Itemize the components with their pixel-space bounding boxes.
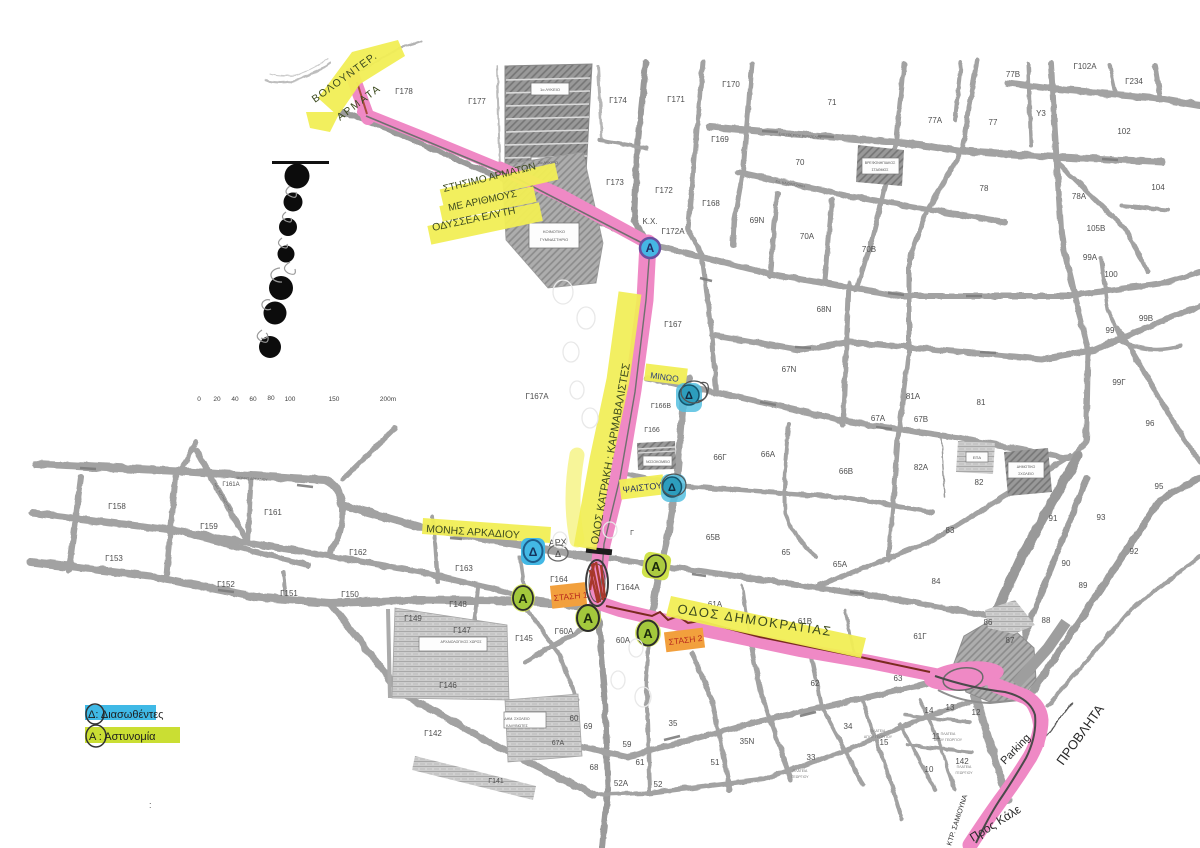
svg-text:82A: 82A	[914, 463, 929, 472]
svg-text:ΠΛΑΤΕΙΑ: ΠΛΑΤΕΙΑ	[957, 765, 972, 769]
svg-text:67A: 67A	[871, 414, 886, 423]
svg-text:Γ: Γ	[630, 530, 634, 537]
svg-text:Γ151: Γ151	[280, 589, 298, 598]
svg-text:Γ174: Γ174	[609, 96, 627, 105]
svg-text:Γ170: Γ170	[722, 80, 740, 89]
svg-text:A: A	[646, 241, 655, 255]
svg-text:Γ166: Γ166	[644, 427, 660, 434]
svg-text:Γ167: Γ167	[664, 320, 682, 329]
svg-text:81A: 81A	[906, 392, 921, 401]
svg-text:89: 89	[1079, 581, 1088, 590]
svg-text:61Γ: 61Γ	[913, 632, 927, 641]
svg-text:100: 100	[1104, 270, 1118, 279]
svg-text:67B: 67B	[914, 415, 928, 424]
svg-text:60: 60	[570, 714, 579, 723]
svg-text:80: 80	[267, 395, 275, 402]
svg-text:Γ141: Γ141	[488, 778, 504, 785]
svg-text:ΠΛΑΤΕΙΑ: ΠΛΑΤΕΙΑ	[941, 732, 956, 736]
svg-text:77B: 77B	[1006, 70, 1020, 79]
svg-text:Γ177: Γ177	[468, 97, 486, 106]
svg-text:ΓΕΩΡΓΙΟΥ: ΓΕΩΡΓΙΟΥ	[791, 775, 809, 779]
svg-text:ΣΤΑΘΜΟΣ: ΣΤΑΘΜΟΣ	[872, 168, 890, 172]
svg-text:Α : Αστυνομία: Α : Αστυνομία	[89, 731, 156, 743]
svg-text:83: 83	[946, 526, 955, 535]
svg-text:13: 13	[946, 703, 955, 712]
svg-text:K.X.: K.X.	[642, 217, 657, 226]
svg-text:Γ167A: Γ167A	[525, 392, 549, 401]
svg-text:Γ172A: Γ172A	[661, 227, 685, 236]
svg-text:100: 100	[285, 396, 296, 403]
svg-text:96: 96	[1146, 419, 1155, 428]
svg-text:20: 20	[213, 396, 221, 403]
svg-text:Δ: Δ	[529, 545, 538, 559]
svg-text:65B: 65B	[706, 533, 720, 542]
svg-text:Γ152: Γ152	[217, 580, 235, 589]
svg-text:95: 95	[1155, 482, 1164, 491]
svg-text:ΚΟΙΝΟΤΙΚΟ: ΚΟΙΝΟΤΙΚΟ	[543, 229, 565, 234]
svg-text:92: 92	[1130, 547, 1139, 556]
svg-text:Γ145: Γ145	[515, 634, 533, 643]
svg-text:67A: 67A	[552, 740, 565, 747]
svg-text:15: 15	[880, 738, 889, 747]
svg-text:ΝΟΣΟΚΟΜΕΙΟ: ΝΟΣΟΚΟΜΕΙΟ	[646, 460, 670, 464]
svg-text:ΑΓΙΟΥ ΓΕΩΡΓΙΟΥ: ΑΓΙΟΥ ΓΕΩΡΓΙΟΥ	[934, 738, 963, 742]
svg-text:0: 0	[197, 396, 201, 403]
svg-text:Δ: Δ	[668, 482, 676, 494]
svg-text:Γ161A: Γ161A	[222, 482, 239, 488]
svg-text:71: 71	[828, 98, 837, 107]
svg-text:200m: 200m	[380, 396, 396, 403]
svg-text:35: 35	[669, 719, 678, 728]
svg-text:Δ: Διασωθέντες: Δ: Διασωθέντες	[88, 709, 163, 721]
svg-text:86: 86	[984, 618, 993, 627]
svg-text:Γ142: Γ142	[424, 729, 442, 738]
svg-text:ΔΗΜΟΤΙΚΟ: ΔΗΜΟΤΙΚΟ	[1017, 465, 1036, 469]
svg-text:102: 102	[1117, 127, 1131, 136]
svg-text:84: 84	[932, 577, 941, 586]
svg-text:52A: 52A	[614, 779, 629, 788]
svg-text:ΑΡΧΑΙΟΛΟΓΙΚΟΣ ΧΩΡΟΣ: ΑΡΧΑΙΟΛΟΓΙΚΟΣ ΧΩΡΟΣ	[440, 640, 482, 644]
svg-text:66A: 66A	[761, 450, 776, 459]
svg-text:93: 93	[1097, 513, 1106, 522]
svg-text:Γ171: Γ171	[667, 95, 685, 104]
svg-text:69N: 69N	[750, 216, 765, 225]
svg-text:ΒΡΕΦΟΝΗΠΙΑΚΟΣ: ΒΡΕΦΟΝΗΠΙΑΚΟΣ	[865, 161, 896, 165]
svg-text:Γ166B: Γ166B	[651, 403, 672, 410]
svg-text:Γ146: Γ146	[439, 681, 457, 690]
svg-text:33: 33	[807, 753, 816, 762]
svg-text:66Γ: 66Γ	[713, 453, 727, 462]
svg-text:10: 10	[925, 765, 934, 774]
svg-text:1ο ΛΥΚΕΙΟ: 1ο ΛΥΚΕΙΟ	[540, 87, 560, 92]
svg-text:60A: 60A	[616, 636, 631, 645]
svg-text:77: 77	[989, 118, 998, 127]
svg-text::: :	[149, 800, 152, 810]
svg-text:Γ150: Γ150	[341, 590, 359, 599]
svg-text:Γ149: Γ149	[404, 614, 422, 623]
svg-text:ΑΓΙΟΥ ΓΕΩΡΓΙΟΥ: ΑΓΙΟΥ ΓΕΩΡΓΙΟΥ	[864, 735, 893, 739]
svg-text:ΔΗΜ. ΣΧΟΛΕΙΟ: ΔΗΜ. ΣΧΟΛΕΙΟ	[504, 717, 530, 721]
svg-text:34: 34	[844, 722, 853, 731]
svg-text:Γ164A: Γ164A	[616, 583, 640, 592]
svg-text:Γ172: Γ172	[655, 186, 673, 195]
svg-text:78: 78	[980, 184, 989, 193]
svg-text:99Γ: 99Γ	[1112, 378, 1126, 387]
svg-text:14: 14	[925, 706, 934, 715]
svg-text:Γ60A: Γ60A	[555, 627, 574, 636]
svg-text:Γ148: Γ148	[449, 600, 467, 609]
svg-text:Γ234: Γ234	[1125, 77, 1143, 86]
svg-text:40: 40	[231, 396, 239, 403]
svg-text:ΚΑΛΥΒΙΩΤΕΣ: ΚΑΛΥΒΙΩΤΕΣ	[506, 724, 528, 728]
svg-text:Γ162: Γ162	[349, 548, 367, 557]
svg-text:35N: 35N	[740, 737, 755, 746]
svg-text:ΓΥΜΝΑΣΤΗΡΙΟ: ΓΥΜΝΑΣΤΗΡΙΟ	[540, 237, 568, 242]
svg-text:104: 104	[1151, 183, 1165, 192]
svg-text:12: 12	[972, 708, 981, 717]
svg-text:Γ158: Γ158	[108, 502, 126, 511]
svg-text:Γ102A: Γ102A	[1073, 62, 1097, 71]
svg-text:A: A	[651, 559, 661, 574]
svg-text:105B: 105B	[1087, 224, 1106, 233]
svg-text:88: 88	[1042, 616, 1051, 625]
svg-text:150: 150	[329, 396, 340, 403]
svg-text:Γ153: Γ153	[105, 554, 123, 563]
svg-text:67N: 67N	[782, 365, 797, 374]
svg-text:Γ168: Γ168	[702, 199, 720, 208]
svg-text:65A: 65A	[833, 560, 848, 569]
svg-text:ΠΛΑΤΕΙΑ: ΠΛΑΤΕΙΑ	[793, 769, 808, 773]
svg-text:99A: 99A	[1083, 253, 1098, 262]
svg-text:99: 99	[1106, 326, 1115, 335]
svg-text:Y3: Y3	[1036, 109, 1046, 118]
svg-text:90: 90	[1062, 559, 1071, 568]
svg-text:61: 61	[636, 758, 645, 767]
svg-text:Γ164: Γ164	[550, 575, 568, 584]
svg-text:Δ: Δ	[685, 390, 693, 402]
svg-text:Γ159: Γ159	[200, 522, 218, 531]
svg-text:65: 65	[782, 548, 791, 557]
svg-text:62: 62	[811, 679, 820, 688]
svg-text:ΓΕΩΡΓΙΟΥ: ΓΕΩΡΓΙΟΥ	[955, 771, 973, 775]
svg-text:69: 69	[584, 722, 593, 731]
svg-text:70A: 70A	[800, 232, 815, 241]
svg-text:ΣΧΟΛΕΙΟ: ΣΧΟΛΕΙΟ	[1018, 472, 1034, 476]
svg-text:A: A	[518, 591, 528, 606]
svg-text:Δ: Δ	[555, 549, 561, 559]
svg-text:A: A	[583, 610, 593, 626]
svg-text:87: 87	[1006, 636, 1015, 645]
svg-text:52: 52	[654, 780, 663, 789]
svg-text:66B: 66B	[839, 467, 853, 476]
svg-text:Γ173: Γ173	[606, 178, 624, 187]
svg-text:60: 60	[249, 396, 257, 403]
svg-text:Γ163: Γ163	[455, 564, 473, 573]
svg-text:78A: 78A	[1072, 192, 1087, 201]
svg-text:ΕΠΑ: ΕΠΑ	[973, 455, 982, 460]
svg-text:81: 81	[977, 398, 986, 407]
svg-text:Γ147: Γ147	[453, 626, 471, 635]
svg-text:ΠΛΑΤΕΙΑ: ΠΛΑΤΕΙΑ	[871, 729, 886, 733]
svg-text:68N: 68N	[817, 305, 832, 314]
svg-text:Γ178: Γ178	[395, 87, 413, 96]
svg-text:51: 51	[711, 758, 720, 767]
svg-text:59: 59	[623, 740, 632, 749]
svg-text:68: 68	[590, 763, 599, 772]
svg-text:82: 82	[975, 478, 984, 487]
svg-text:77A: 77A	[928, 116, 943, 125]
svg-text:91: 91	[1049, 514, 1058, 523]
svg-text:70: 70	[796, 158, 805, 167]
svg-text:A: A	[643, 626, 653, 641]
svg-text:70B: 70B	[862, 245, 876, 254]
svg-text:99B: 99B	[1139, 314, 1153, 323]
svg-text:Γ169: Γ169	[711, 135, 729, 144]
svg-text:Γ161: Γ161	[264, 508, 282, 517]
